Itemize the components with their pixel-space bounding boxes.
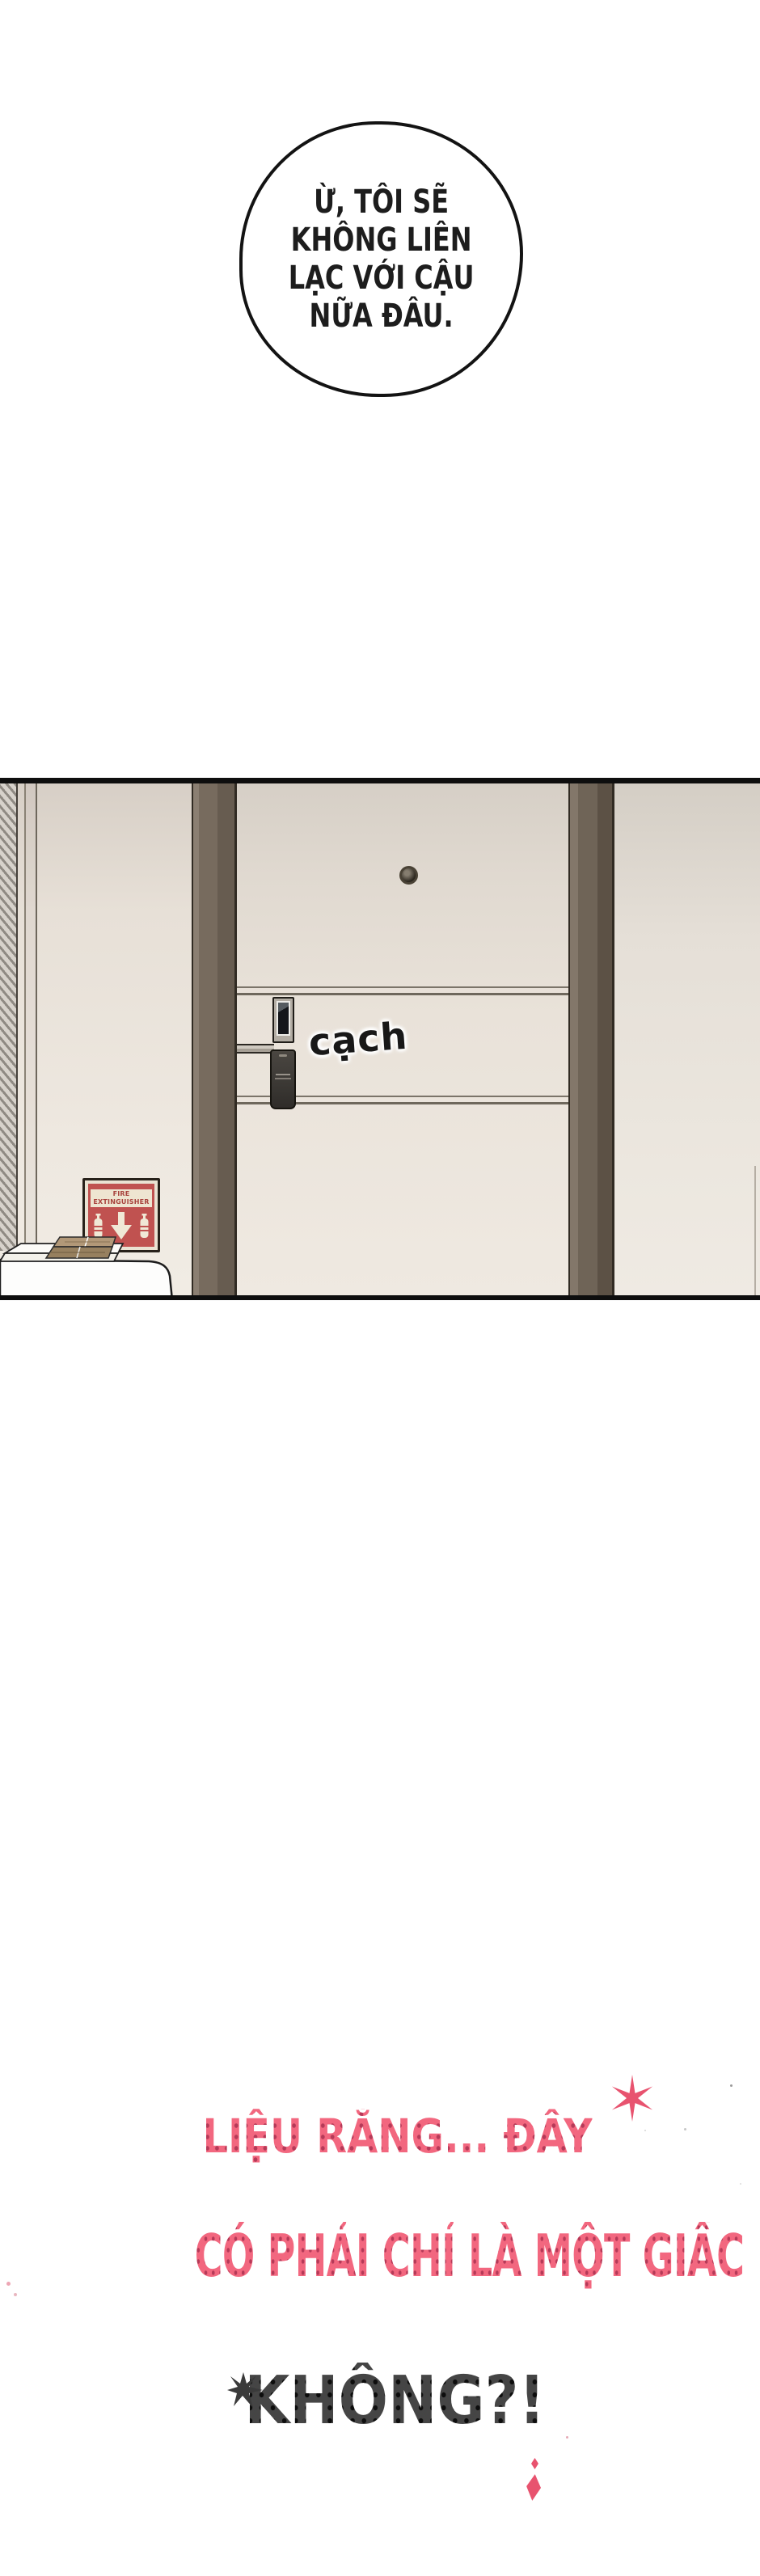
sparkle-dot — [644, 2130, 646, 2131]
sparkle-dot — [740, 2183, 741, 2185]
star-sparkle-icon — [609, 2075, 656, 2122]
sparkle-dot — [730, 2084, 733, 2087]
sparkle-dot — [684, 2128, 686, 2130]
entry-counter — [0, 1224, 194, 1300]
door-frame-left — [192, 783, 237, 1295]
caption-line-3: KHÔNG?! — [244, 2363, 545, 2439]
door-scene-panel: cạch FIRE EXTINGUISHER — [0, 778, 760, 1300]
caption-line-1: LIỆU RẰNG... ĐÂY — [203, 2109, 593, 2164]
wall-corner-line — [754, 1166, 756, 1295]
caption-line-2: CÓ PHẢI CHỈ LÀ MỘT GIẤC MƠ.. — [195, 2222, 760, 2290]
caption-row-3: KHÔNG?! — [0, 2363, 760, 2439]
wall-corner-shade — [26, 783, 36, 1295]
door-lock-notch — [279, 1054, 287, 1057]
wall-molding-line — [24, 783, 26, 1295]
caption-row-2: CÓ PHẢI CHỈ LÀ MỘT GIẤC MƠ.. — [0, 2222, 760, 2290]
diamond-sparkle-icon — [525, 2473, 542, 2502]
right-wall — [614, 783, 760, 1295]
speech-bubble-text: Ừ, TÔI SẼ KHÔNG LIÊN LẠC VỚI CẬU NỮA ĐÂU… — [289, 184, 475, 336]
panel-border-top — [0, 778, 760, 783]
diamond-sparkle-icon — [531, 2458, 538, 2469]
sparkle-dot — [14, 2293, 17, 2296]
speech-line: KHÔNG LIÊN — [289, 222, 475, 260]
sparkle-dot — [6, 2282, 11, 2286]
door-handle — [237, 1044, 274, 1054]
speech-line: LẠC VỚI CẬU — [289, 260, 475, 298]
wall-molding-line — [36, 783, 37, 1295]
comic-page: { "speech_bubble": { "lines": ["Ừ, TÔI S… — [0, 0, 760, 2576]
door-trim-line — [237, 986, 568, 996]
door-peephole — [399, 866, 418, 885]
sparkle-dot — [566, 2436, 568, 2439]
fire-extinguisher-sign-label: FIRE EXTINGUISHER — [91, 1189, 152, 1207]
door-frame-right — [568, 783, 614, 1295]
speech-line: Ừ, TÔI SẼ — [289, 184, 475, 222]
speech-bubble: Ừ, TÔI SẼ KHÔNG LIÊN LẠC VỚI CẬU NỮA ĐÂU… — [239, 121, 523, 397]
burst-icon — [227, 2372, 263, 2409]
door-lock-brand-line — [275, 1078, 291, 1079]
panel-border-bottom — [0, 1295, 760, 1300]
window-blinds — [0, 783, 18, 1251]
door-lock-brand-line — [276, 1074, 290, 1075]
speech-line: NỮA ĐÂU. — [289, 298, 475, 336]
